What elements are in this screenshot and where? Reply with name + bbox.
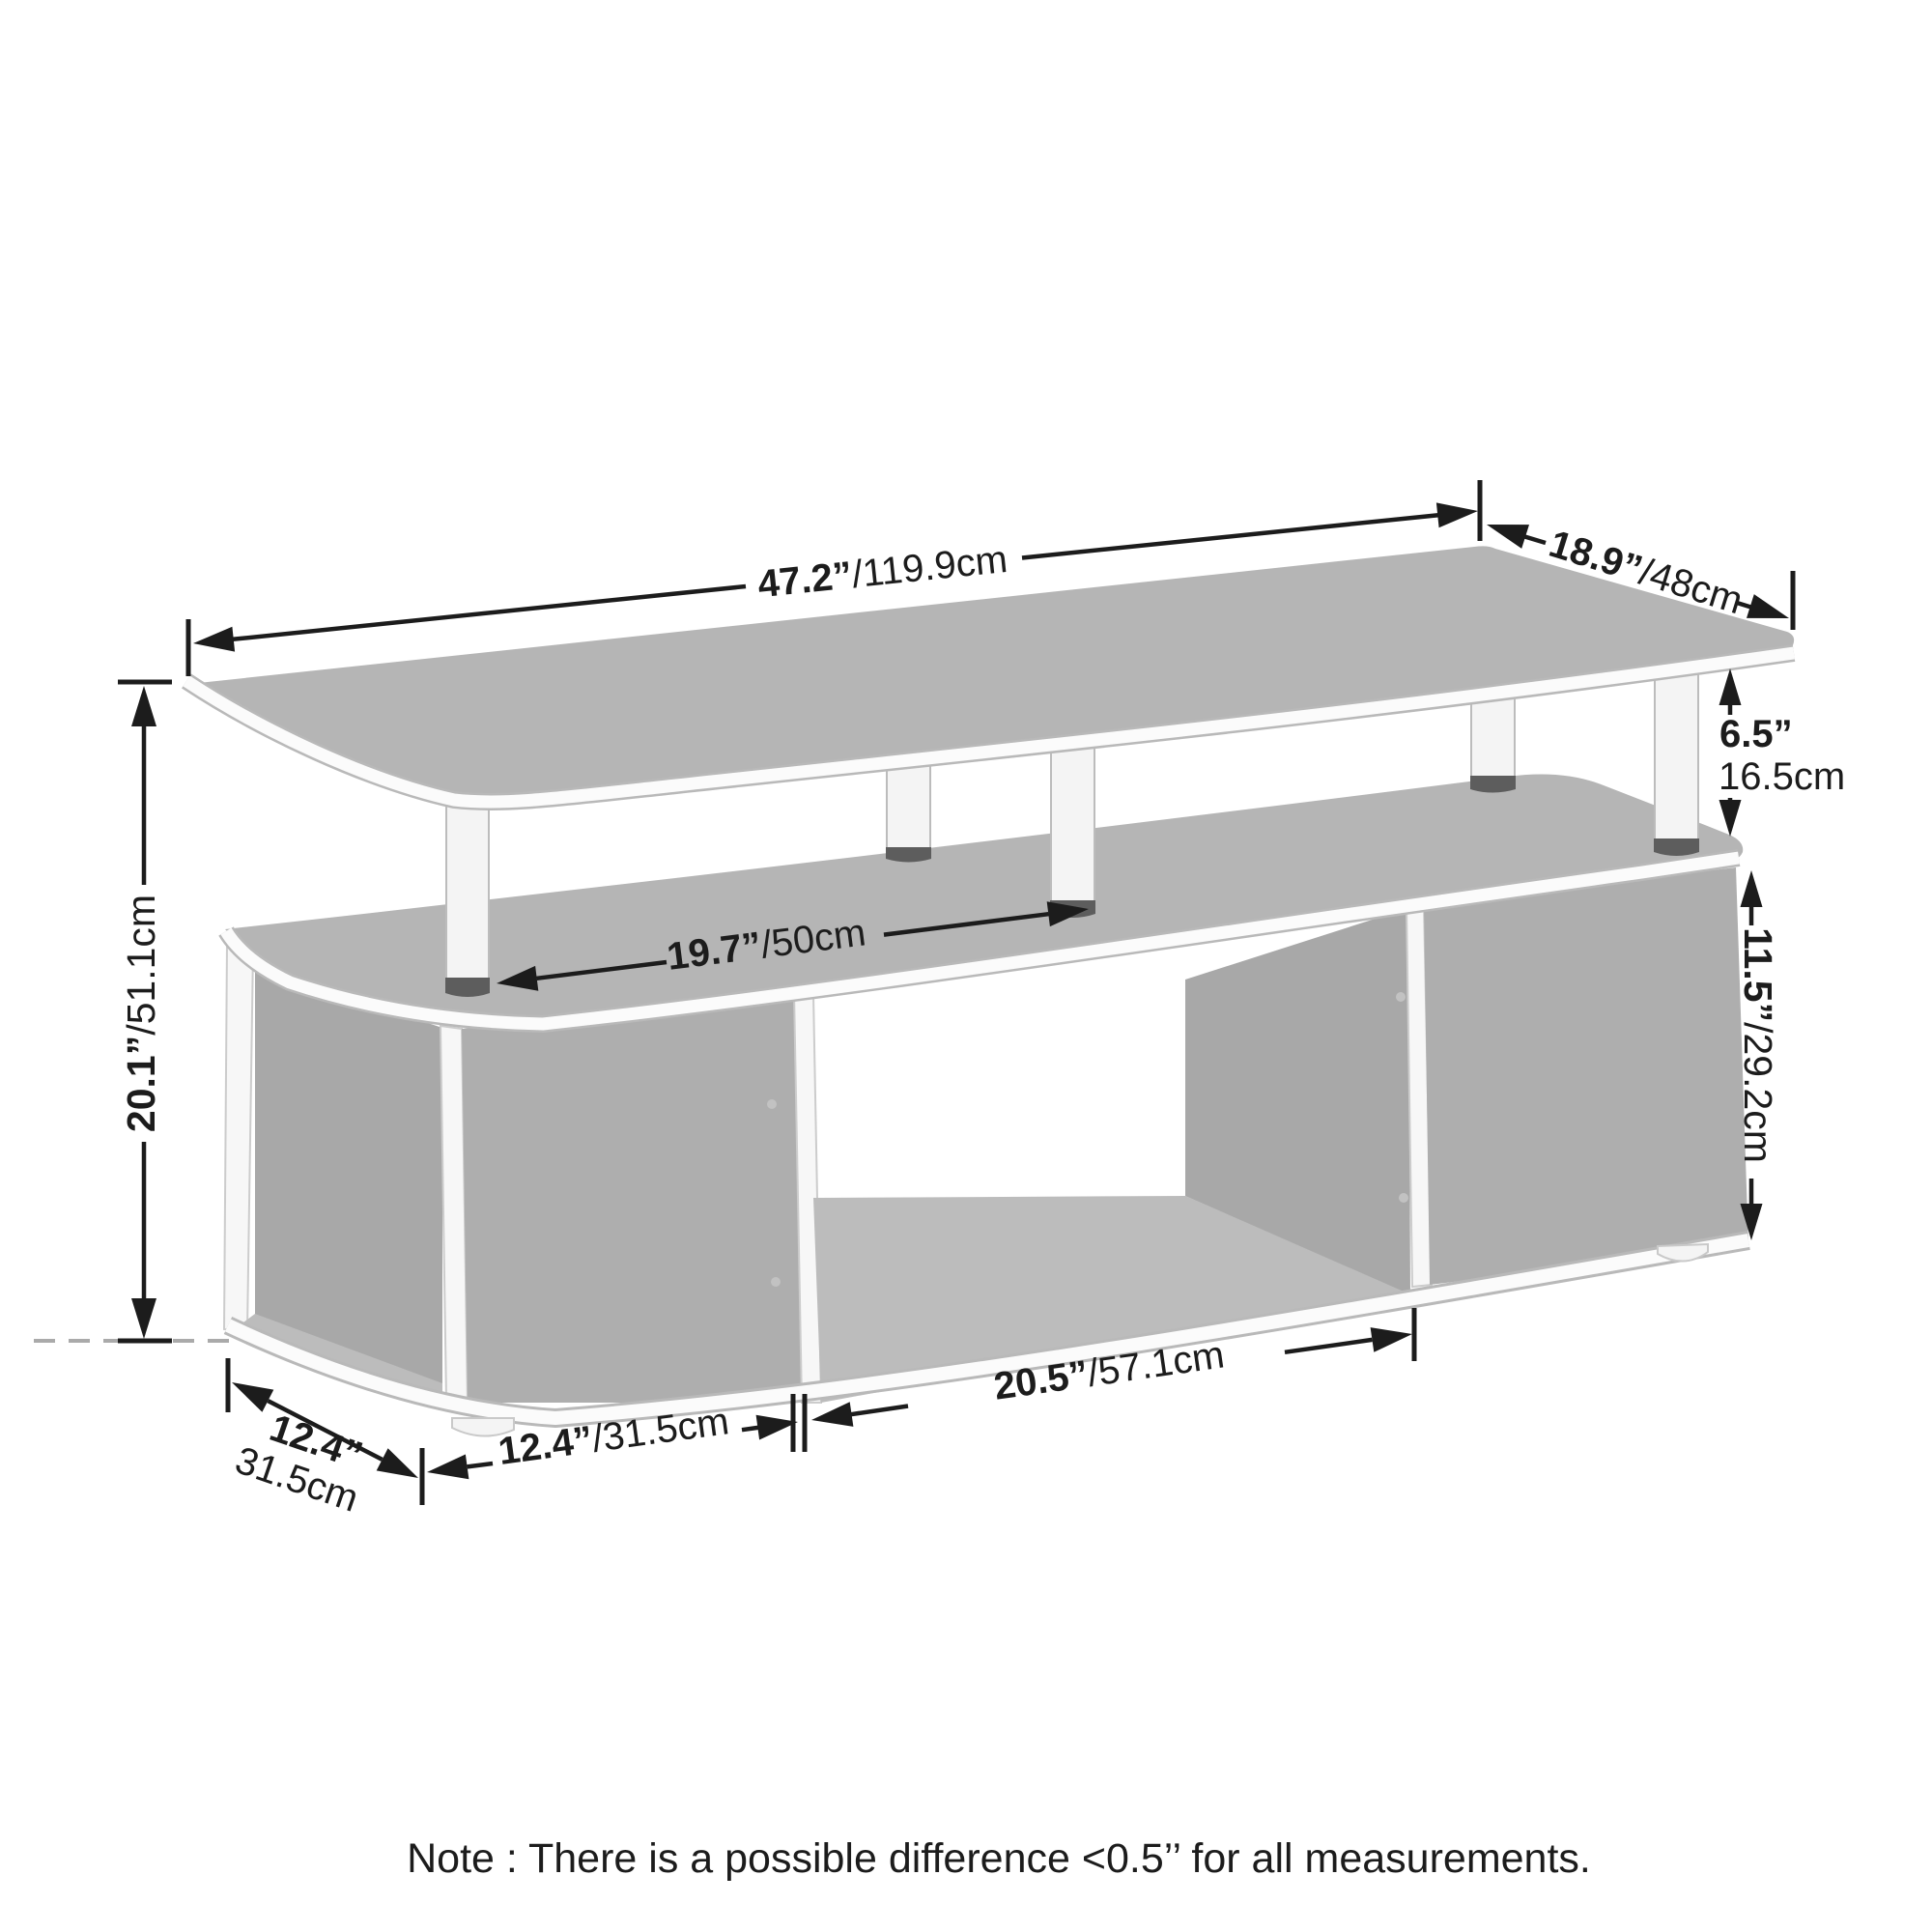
svg-text:16.5cm: 16.5cm bbox=[1719, 755, 1845, 798]
svg-text:20.1”/51.1cm: 20.1”/51.1cm bbox=[119, 895, 163, 1132]
svg-text:11.5”/29.2cm: 11.5”/29.2cm bbox=[1736, 927, 1780, 1163]
svg-text:Note : There is a possible dif: Note : There is a possible difference <0… bbox=[407, 1835, 1591, 1882]
svg-text:6.5”: 6.5” bbox=[1719, 713, 1793, 755]
